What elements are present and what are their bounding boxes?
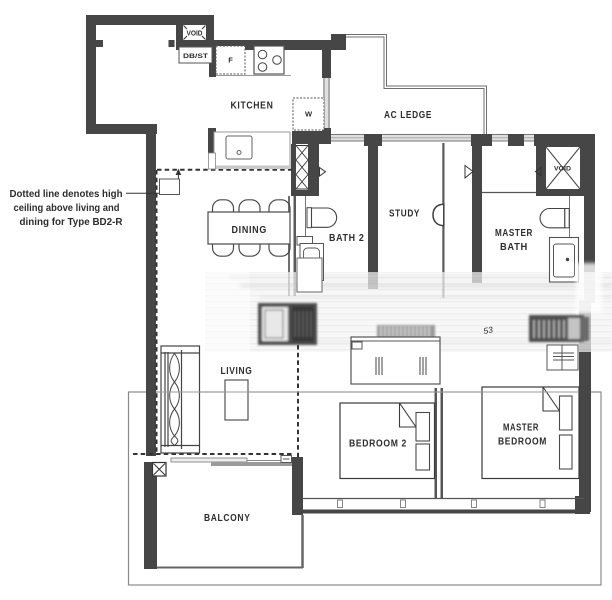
svg-text:VOID: VOID [554,167,572,173]
svg-text:BEDROOM 2: BEDROOM 2 [349,438,407,450]
svg-text:MASTER: MASTER [495,227,533,239]
svg-text:ceiling above living and: ceiling above living and [14,202,120,214]
svg-text:53: 53 [483,324,494,336]
svg-text:KITCHEN: KITCHEN [231,100,274,112]
svg-text:AC LEDGE: AC LEDGE [384,109,432,121]
svg-text:BATH: BATH [500,241,528,253]
svg-text:Dotted line denotes high: Dotted line denotes high [10,188,123,200]
svg-text:BEDROOM: BEDROOM [498,436,547,448]
svg-text:BATH 2: BATH 2 [329,232,365,244]
svg-text:F: F [228,56,233,65]
svg-text:dining for Type BD2-R: dining for Type BD2-R [20,216,123,228]
svg-text:MASTER: MASTER [503,422,539,434]
svg-text:VOID: VOID [187,31,203,38]
svg-text:DB/ST: DB/ST [183,53,208,60]
svg-text:STUDY: STUDY [389,208,420,220]
svg-text:W: W [305,110,313,119]
svg-text:BALCONY: BALCONY [204,512,251,524]
svg-text:LIVING: LIVING [221,365,253,377]
svg-text:DINING: DINING [232,224,268,236]
